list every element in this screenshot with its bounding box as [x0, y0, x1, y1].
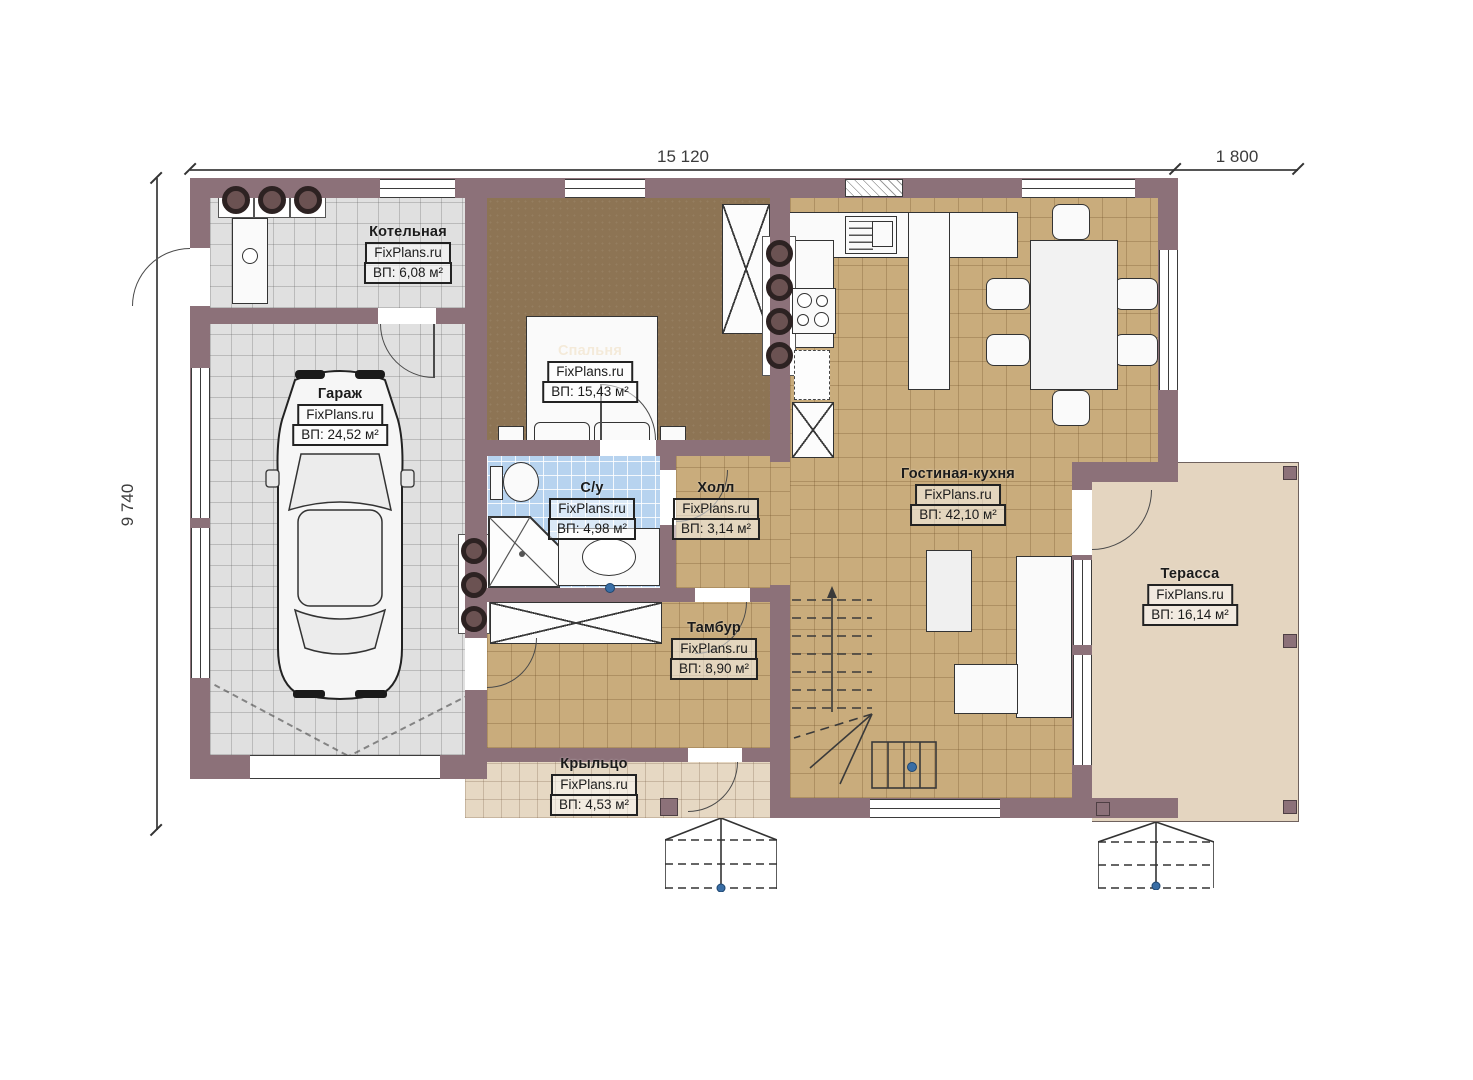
terrace-steps [1098, 822, 1214, 890]
window-kitchen-top [1022, 179, 1135, 198]
door-leaf-boiler-garage [433, 324, 435, 378]
window-dining-right [1159, 250, 1178, 390]
terrace-post [1283, 466, 1297, 480]
room-name-bathroom: С/у [580, 480, 603, 496]
stove-burner [816, 295, 828, 307]
watermark-box: FixPlans.ru [671, 638, 757, 660]
boiler-unit-icon [258, 186, 286, 214]
wall-southeast-step [1072, 462, 1178, 482]
porch-post [660, 798, 678, 816]
floor-hall-passage [770, 462, 790, 588]
area-box: ВП: 16,14 м² [1142, 604, 1238, 626]
watermark-box: FixPlans.ru [549, 498, 635, 520]
watermark-box: FixPlans.ru [547, 361, 633, 383]
dining-table [1030, 240, 1118, 390]
room-label-bathroom: С/у FixPlans.ru ВП: 4,98 м² [548, 480, 636, 540]
room-name-boiler: Котельная [369, 224, 447, 240]
door-opening-boiler-exterior [190, 248, 210, 306]
area-box: ВП: 15,43 м² [542, 381, 638, 403]
watermark-box: FixPlans.ru [365, 242, 451, 264]
dimension-line-left [156, 178, 158, 830]
area-box: ВП: 24,52 м² [292, 424, 388, 446]
chimney-vent [845, 179, 903, 197]
sofa-chaise [954, 664, 1018, 714]
door-opening-porch [688, 748, 742, 762]
watermark-box: FixPlans.ru [915, 484, 1001, 506]
porch-steps [665, 818, 777, 892]
kitchen-peninsula [908, 212, 950, 390]
room-label-porch: Крыльцо FixPlans.ru ВП: 4,53 м² [550, 756, 638, 816]
kitchen-unit-icon [766, 308, 793, 335]
door-opening-bedroom [600, 440, 656, 456]
room-label-terrace: Терасса FixPlans.ru ВП: 16,14 м² [1142, 566, 1238, 626]
toilet-bowl [503, 462, 539, 502]
dining-chair [1052, 204, 1090, 240]
window-living-terrace-2 [1073, 655, 1092, 765]
dimension-label-height: 9 740 [118, 484, 138, 527]
door-opening-terrace [1072, 490, 1092, 555]
watermark-box: FixPlans.ru [551, 774, 637, 796]
bathroom-unit-icon [461, 606, 487, 632]
dimension-label-width-terrace: 1 800 [1216, 147, 1259, 167]
dining-chair [1052, 390, 1090, 426]
dining-chair [986, 278, 1030, 310]
door-opening-garage-tambour [465, 638, 487, 690]
room-label-tambour: Тамбур FixPlans.ru ВП: 8,90 м² [670, 620, 758, 680]
room-name-garage: Гараж [318, 386, 362, 402]
refrigerator [792, 402, 834, 458]
room-name-tambour: Тамбур [687, 620, 741, 636]
room-label-boiler: Котельная FixPlans.ru ВП: 6,08 м² [364, 224, 452, 284]
room-label-living-kitchen: Гостиная-кухня FixPlans.ru ВП: 42,10 м² [901, 466, 1015, 526]
kitchen-oven-door [872, 221, 893, 247]
terrace-post [1283, 800, 1297, 814]
area-box: ВП: 6,08 м² [364, 262, 452, 284]
terrace-post [1283, 634, 1297, 648]
window-living-bottom [870, 799, 1000, 818]
bathroom-unit-icon [461, 538, 487, 564]
staircase [788, 582, 938, 792]
dining-chair [1114, 278, 1158, 310]
kitchen-unit-icon [766, 240, 793, 267]
stove-burner [797, 314, 809, 326]
sink-tap-dot [605, 583, 615, 593]
stairs-marker-dot [907, 762, 917, 772]
room-name-living-kitchen: Гостиная-кухня [901, 466, 1015, 482]
room-name-bedroom: Спальня [558, 343, 622, 359]
area-box: ВП: 4,98 м² [548, 518, 636, 540]
boiler-unit-icon [294, 186, 322, 214]
watermark-box: FixPlans.ru [297, 404, 383, 426]
garage-gate-opening [250, 755, 440, 779]
kitchen-unit-icon [766, 274, 793, 301]
room-label-garage: Гараж FixPlans.ru ВП: 24,52 м² [292, 386, 388, 446]
area-box: ВП: 42,10 м² [910, 504, 1006, 526]
wall-central-kitchen-lower [770, 585, 790, 798]
window-garage-left-1 [191, 368, 210, 518]
stove-burner [797, 293, 812, 308]
window-bedroom-top [565, 179, 645, 198]
dining-chair [986, 334, 1030, 366]
window-garage-left-2 [191, 528, 210, 678]
room-name-terrace: Терасса [1161, 566, 1220, 582]
stove-burner [814, 312, 829, 327]
dining-chair [1114, 334, 1158, 366]
watermark-box: FixPlans.ru [673, 498, 759, 520]
dimension-label-width-main: 15 120 [657, 147, 709, 167]
dimension-line-top-main [190, 169, 1175, 171]
door-opening-boiler-garage [378, 308, 436, 324]
door-opening-hall-tambour [695, 588, 750, 602]
dishwasher [794, 350, 830, 400]
kitchen-unit-icon [766, 342, 793, 369]
bathroom-sink [582, 538, 636, 576]
room-name-porch: Крыльцо [560, 756, 627, 772]
dimension-line-top-terrace [1175, 169, 1298, 171]
window-living-terrace-1 [1073, 560, 1092, 645]
area-box: ВП: 4,53 м² [550, 794, 638, 816]
room-label-hall: Холл FixPlans.ru ВП: 3,14 м² [672, 480, 760, 540]
terrace-post [1096, 802, 1110, 816]
bathroom-unit-icon [461, 572, 487, 598]
room-name-hall: Холл [697, 480, 734, 496]
room-label-bedroom: Спальня FixPlans.ru ВП: 15,43 м² [542, 343, 638, 403]
floor-plan-canvas: 15 120 1 800 9 740 [0, 0, 1473, 1080]
area-box: ВП: 3,14 м² [672, 518, 760, 540]
toilet-tank [490, 466, 503, 500]
watermark-box: FixPlans.ru [1147, 584, 1233, 606]
window-boiler-top [380, 179, 455, 198]
sofa-vertical [1016, 556, 1072, 718]
boiler-sink-icon [242, 248, 258, 264]
area-box: ВП: 8,90 м² [670, 658, 758, 680]
door-arc-boiler-exterior [132, 248, 190, 306]
boiler-unit-icon [222, 186, 250, 214]
